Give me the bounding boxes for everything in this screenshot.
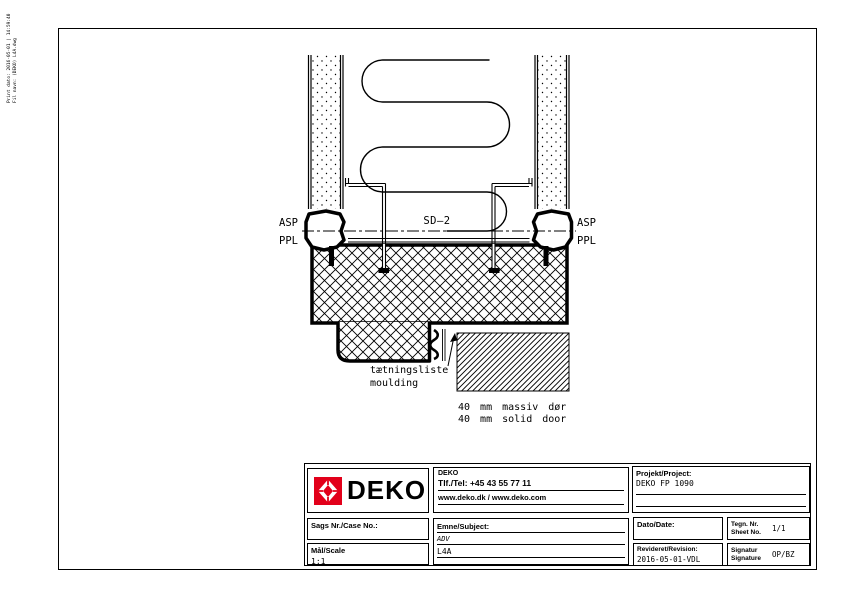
date-box: Dato/Date:	[633, 517, 723, 540]
ppl-label-left: PPL	[268, 235, 298, 247]
company-phone: Tlf./Tel: +45 43 55 77 11	[438, 477, 624, 491]
sheet-number-label-en: Sheet No.	[731, 529, 761, 537]
logo-wordmark: DEKO	[347, 475, 426, 506]
sheet-number-label-da: Tegn. Nr.	[731, 521, 761, 529]
sd2-label: SD–2	[409, 215, 465, 227]
date-label: Dato/Date:	[637, 520, 719, 529]
signature-box: Signatur Signature OP/BZ	[727, 543, 810, 566]
project-box: Projekt/Project: DEKO FP 1090	[632, 466, 810, 513]
asp-label-right: ASP	[577, 217, 596, 229]
revision-box: Revideret/Revision: 2016-05-01-VDL	[633, 543, 723, 566]
subject-box: Emne/Subject: ADV L4A	[433, 518, 629, 565]
subject-label: Emne/Subject:	[437, 521, 625, 533]
case-number-box: Sags Nr./Case No.:	[307, 518, 429, 540]
project-value: DEKO FP 1090	[636, 479, 694, 488]
right-wall-panel	[535, 55, 569, 209]
titleblock: DEKO DEKO Tlf./Tel: +45 43 55 77 11 www.…	[304, 463, 811, 566]
project-blank-line	[636, 506, 806, 507]
solid-door-hatch	[457, 333, 569, 391]
logo-box: DEKO	[307, 468, 429, 513]
case-number-label: Sags Nr./Case No.:	[311, 521, 425, 530]
left-gasket-bar	[329, 246, 334, 266]
scale-label: Mål/Scale	[311, 546, 425, 555]
subject-value-1: ADV	[437, 534, 625, 545]
door-size-label-da: 40 mm massiv dør	[458, 402, 566, 414]
project-label: Projekt/Project:	[636, 469, 691, 478]
sheet-number-value: 1/1	[772, 524, 786, 533]
signature-label-da: Signatur	[731, 547, 761, 555]
leader-arrow	[448, 333, 457, 366]
company-box: DEKO Tlf./Tel: +45 43 55 77 11 www.deko.…	[433, 467, 629, 513]
asp-label-left: ASP	[268, 217, 298, 229]
door-size-label-en: 40 mm solid door	[458, 414, 566, 426]
company-name: DEKO	[438, 470, 624, 477]
threshold-hatch	[312, 245, 567, 323]
bottom-moulding	[338, 322, 430, 361]
seal-label-en: moulding	[370, 378, 418, 390]
revision-label: Revideret/Revision:	[637, 546, 719, 553]
revision-value: 2016-05-01-VDL	[637, 555, 719, 564]
ppl-label-right: PPL	[577, 235, 596, 247]
project-blank-line	[636, 494, 806, 495]
sheet-number-box: Tegn. Nr. Sheet No. 1/1	[727, 517, 810, 540]
company-web: www.deko.dk / www.deko.com	[438, 491, 624, 505]
deko-logo-icon	[314, 477, 342, 505]
left-wall-panel	[309, 55, 344, 209]
scale-box: Mål/Scale 1:1	[307, 543, 429, 565]
right-gasket-bar	[544, 246, 549, 266]
seal-profile	[430, 329, 445, 361]
signature-label-en: Signature	[731, 555, 761, 563]
scale-value: 1:1	[311, 557, 425, 565]
subject-value-2: L4A	[437, 546, 625, 558]
signature-value: OP/BZ	[772, 550, 795, 559]
seal-label-da: tætningsliste	[370, 365, 448, 377]
